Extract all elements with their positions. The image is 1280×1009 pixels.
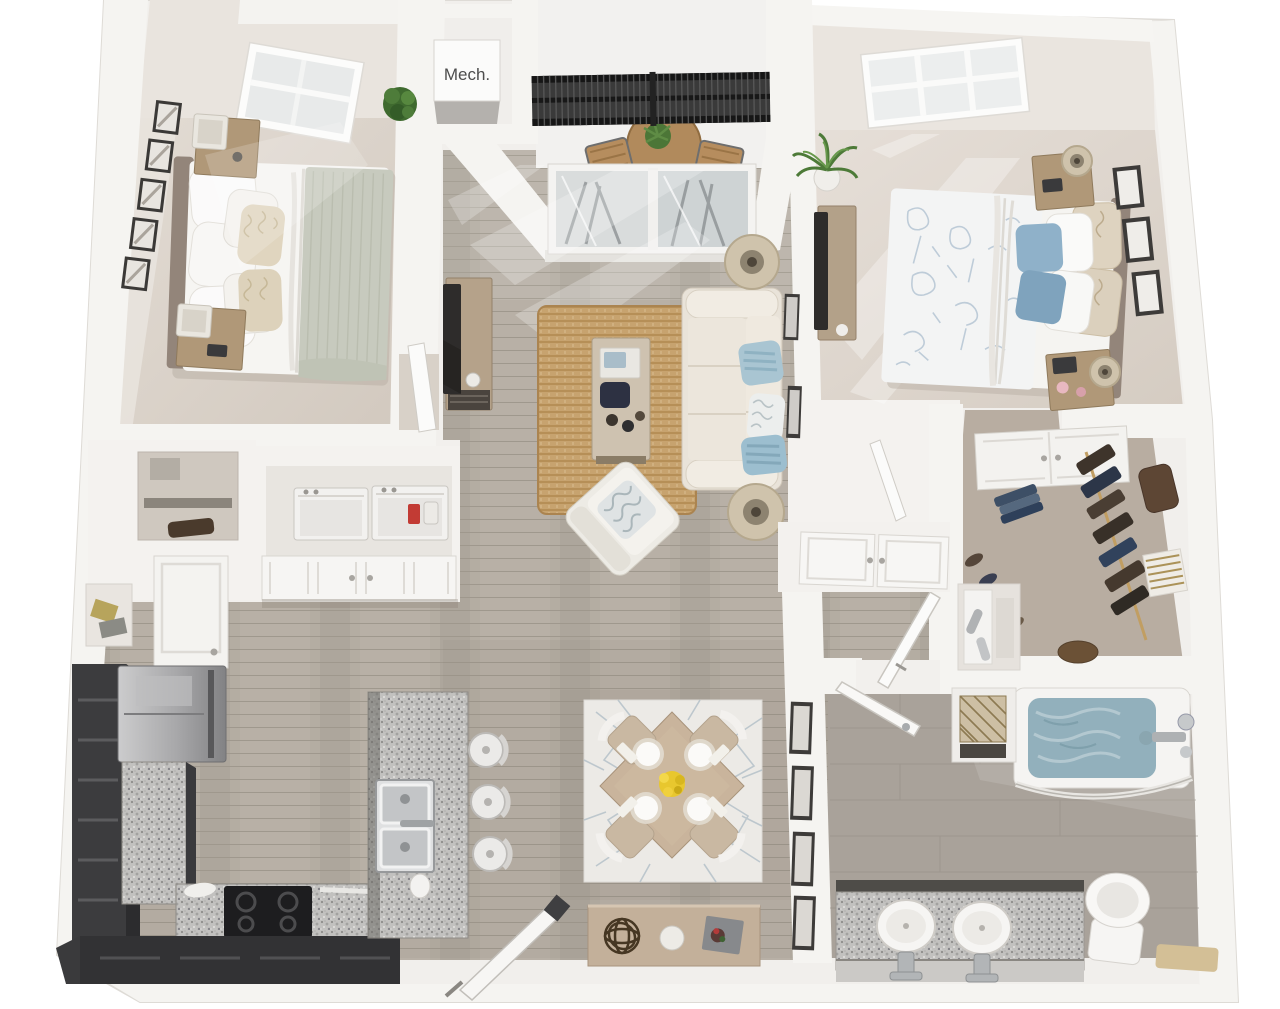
svg-text:Mech.: Mech. — [444, 65, 490, 84]
